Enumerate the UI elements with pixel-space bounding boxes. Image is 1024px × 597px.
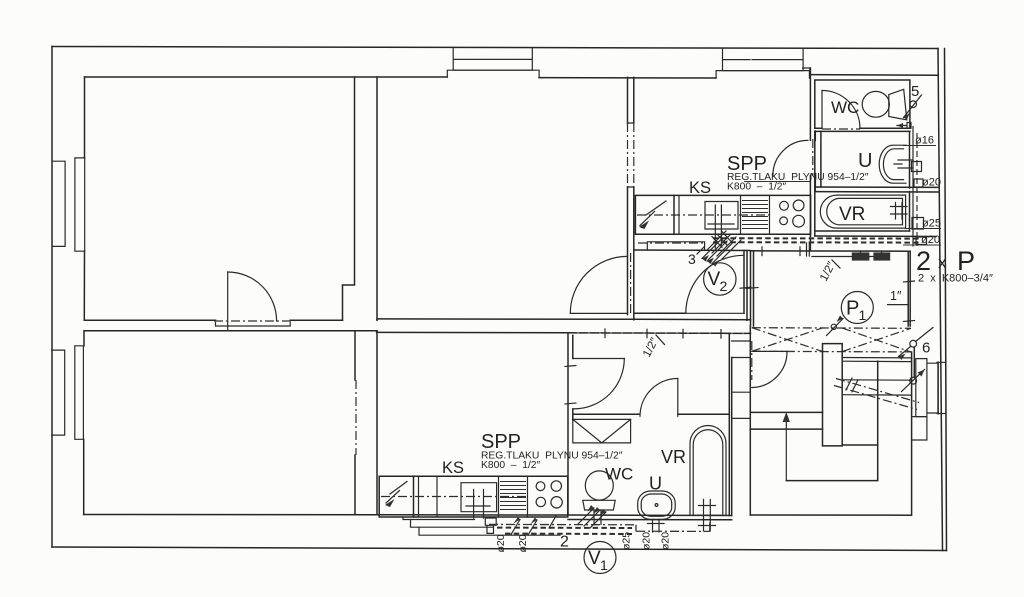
svg-text:WC: WC	[831, 98, 859, 117]
svg-text:ø20: ø20	[495, 534, 507, 552]
svg-text:6: 6	[922, 340, 930, 357]
svg-text:ø20: ø20	[922, 177, 941, 189]
svg-text:2 x K800–3/4″: 2 x K800–3/4″	[918, 273, 993, 285]
svg-text:ø20: ø20	[921, 234, 940, 246]
svg-text:1″: 1″	[890, 289, 902, 303]
svg-text:K800 – 1/2″: K800 – 1/2″	[727, 182, 787, 193]
svg-text:KS: KS	[442, 459, 464, 477]
svg-text:U: U	[649, 474, 662, 494]
svg-text:2: 2	[916, 246, 931, 276]
svg-text:3: 3	[688, 251, 696, 267]
svg-text:2: 2	[720, 278, 728, 294]
svg-text:K800 – 1/2″: K800 – 1/2″	[481, 460, 541, 471]
svg-text:ø25: ø25	[621, 532, 633, 550]
svg-text:5: 5	[911, 83, 919, 100]
svg-text:ø20: ø20	[641, 532, 653, 550]
svg-text:ø25: ø25	[922, 218, 941, 230]
svg-text:1: 1	[859, 307, 867, 323]
svg-text:WC: WC	[605, 465, 633, 484]
svg-text:KS: KS	[689, 179, 711, 197]
svg-text:1: 1	[600, 557, 608, 573]
svg-text:VR: VR	[661, 447, 686, 467]
svg-text:VR: VR	[839, 204, 865, 225]
svg-text:x: x	[938, 253, 947, 272]
svg-text:P: P	[957, 246, 975, 276]
svg-text:ø20: ø20	[660, 532, 672, 550]
svg-text:P: P	[846, 298, 859, 320]
svg-text:ø16: ø16	[915, 135, 934, 147]
svg-text:2: 2	[560, 534, 569, 551]
svg-text:U: U	[858, 150, 872, 172]
svg-text:ø20: ø20	[517, 534, 529, 552]
